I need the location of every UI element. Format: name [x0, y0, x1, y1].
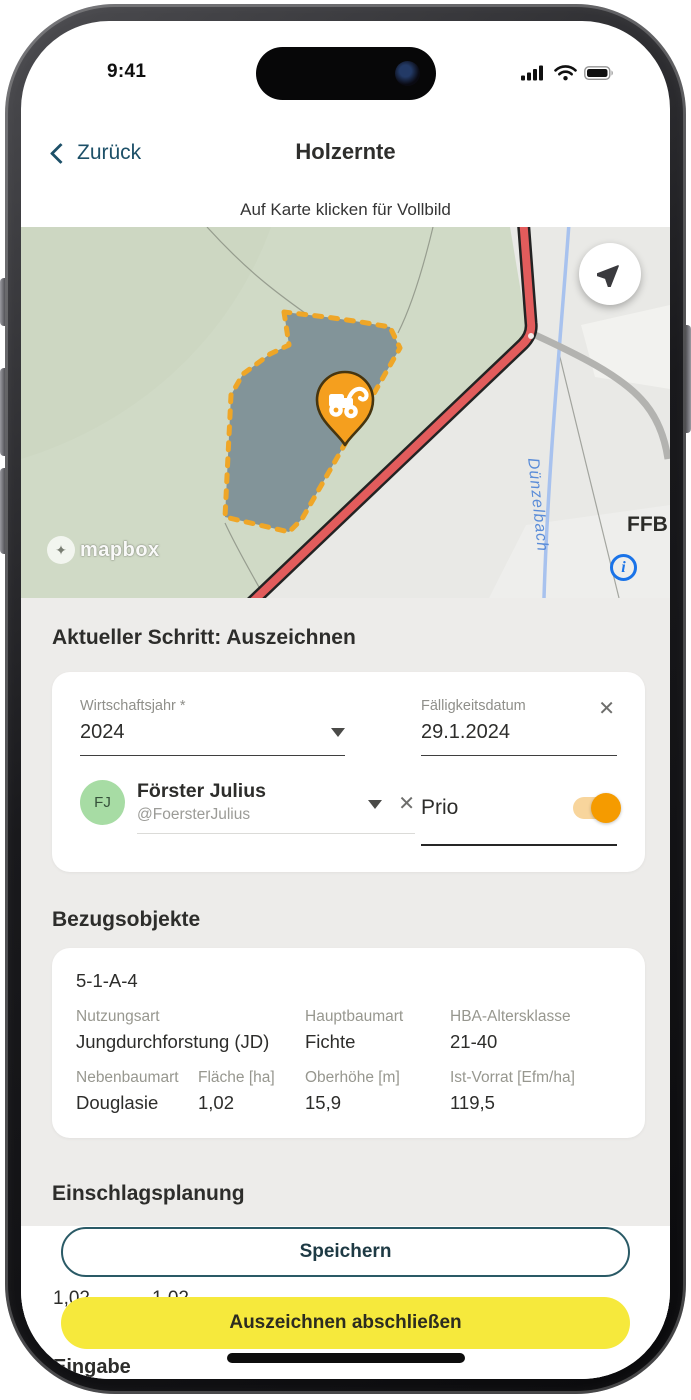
- prio-label: Prio: [421, 796, 458, 820]
- faelligkeitsdatum-label: Fälligkeitsdatum: [421, 698, 617, 714]
- navigation-arrow-icon: [597, 261, 623, 287]
- stat-hauptbaumart: Hauptbaumart Fichte: [305, 1008, 450, 1053]
- chevron-down-icon[interactable]: [368, 800, 382, 809]
- compass-button[interactable]: [579, 243, 641, 305]
- assignee-name: Förster Julius: [137, 780, 368, 803]
- dynamic-island: [256, 47, 436, 100]
- clear-assignee-icon[interactable]: ✕: [398, 794, 415, 814]
- bezugsobjekt-card[interactable]: 5-1-A-4 Nutzungsart Jungdurchforstung (J…: [52, 948, 645, 1138]
- save-button[interactable]: Speichern: [61, 1227, 630, 1277]
- status-time: 9:41: [107, 61, 146, 83]
- faelligkeitsdatum-field[interactable]: Fälligkeitsdatum 29.1.2024 ✕: [421, 698, 617, 756]
- stat-vorrat: Ist-Vorrat [Efm/ha] 119,5: [450, 1069, 621, 1114]
- signal-icon: [521, 65, 547, 81]
- battery-icon: [584, 65, 615, 81]
- prio-toggle[interactable]: [573, 796, 617, 820]
- mapbox-attribution[interactable]: ✦ mapbox: [47, 536, 160, 564]
- map-hint: Auf Karte klicken für Vollbild: [21, 200, 670, 220]
- clear-date-icon[interactable]: ✕: [598, 699, 615, 719]
- mapbox-logo-icon: ✦: [47, 536, 75, 564]
- prio-field: Prio: [421, 788, 617, 846]
- page-title: Holzernte: [21, 139, 670, 165]
- assignee-field[interactable]: FJ Förster Julius @FoersterJulius ✕: [80, 780, 415, 846]
- wirtschaftsjahr-field[interactable]: Wirtschaftsjahr * 2024: [80, 698, 345, 756]
- wifi-icon: [554, 65, 577, 81]
- info-icon[interactable]: i: [610, 554, 637, 581]
- stat-nutzungsart: Nutzungsart Jungdurchforstung (JD): [76, 1008, 305, 1053]
- status-icons: [521, 65, 615, 81]
- wirtschaftsjahr-value: 2024: [80, 721, 125, 744]
- finish-marking-button[interactable]: Auszeichnen abschließen: [61, 1297, 630, 1349]
- object-id: 5-1-A-4: [76, 970, 621, 992]
- mapbox-logo-text: mapbox: [80, 539, 160, 562]
- stat-nebenbaumart: Nebenbaumart Douglasie: [76, 1069, 198, 1114]
- stat-flaeche: Fläche [ha] 1,02: [198, 1069, 305, 1114]
- einschlagsplanung-heading: Einschlagsplanung: [52, 1182, 639, 1206]
- bezugsobjekte-heading: Bezugsobjekte: [52, 908, 639, 932]
- eingabe-label: Eingabe: [53, 1356, 131, 1379]
- stat-altersklasse: HBA-Altersklasse 21-40: [450, 1008, 621, 1053]
- wirtschaftsjahr-label: Wirtschaftsjahr *: [80, 698, 345, 714]
- assignee-handle: @FoersterJulius: [137, 806, 368, 824]
- home-indicator[interactable]: [227, 1353, 465, 1363]
- phone-screen: 9:41 Zurück Holzernte Auf Karte klicken …: [21, 21, 670, 1379]
- camera-icon: [395, 61, 420, 86]
- avatar: FJ: [80, 780, 125, 825]
- current-step-card: Wirtschaftsjahr * 2024 Fälligkeitsdatum …: [52, 672, 645, 872]
- faelligkeitsdatum-value: 29.1.2024: [421, 721, 510, 744]
- map[interactable]: Dünzelbach FFB i ✦ mapbox: [21, 227, 670, 598]
- current-step-heading: Aktueller Schritt: Auszeichnen: [52, 626, 639, 650]
- map-area-label: FFB: [627, 513, 668, 537]
- chevron-down-icon[interactable]: [331, 728, 345, 737]
- stat-oberhoehe: Oberhöhe [m] 15,9: [305, 1069, 450, 1114]
